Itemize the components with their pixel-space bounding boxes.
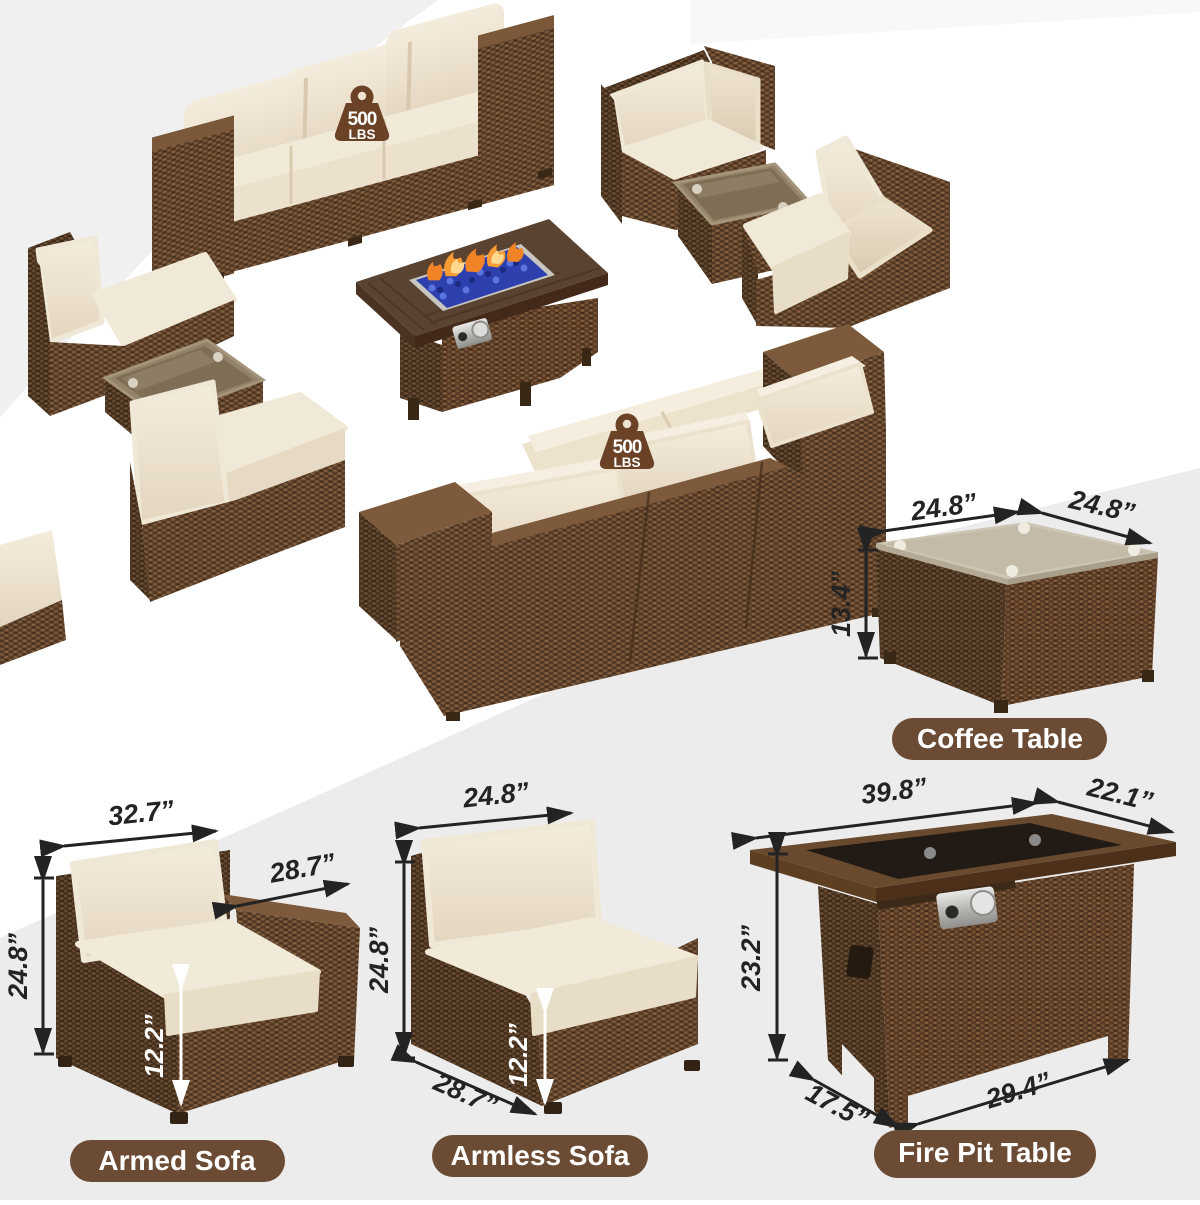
svg-text:Armless Sofa: Armless Sofa — [451, 1140, 630, 1171]
svg-text:12.2”: 12.2” — [503, 1023, 533, 1087]
svg-text:LBS: LBS — [614, 455, 641, 470]
svg-text:13.4”: 13.4” — [826, 570, 856, 637]
svg-text:Armed Sofa: Armed Sofa — [98, 1145, 256, 1176]
svg-text:LBS: LBS — [349, 127, 376, 142]
svg-text:Fire Pit Table: Fire Pit Table — [898, 1137, 1072, 1168]
svg-text:Coffee Table: Coffee Table — [917, 723, 1083, 754]
svg-text:24.8”: 24.8” — [364, 926, 394, 994]
svg-text:24.8”: 24.8” — [3, 932, 33, 1000]
svg-text:12.2”: 12.2” — [139, 1014, 169, 1078]
svg-text:23.2”: 23.2” — [736, 924, 766, 992]
